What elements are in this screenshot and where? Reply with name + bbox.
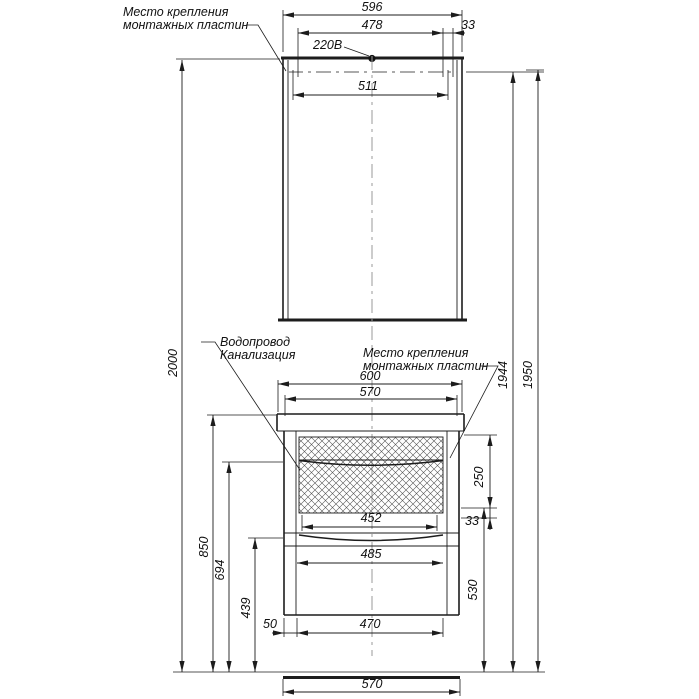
mirror-mounting-label-2: монтажных пластин [123, 18, 249, 32]
power-label: 220В [312, 38, 342, 52]
dim-plate-span: 478 [362, 18, 383, 32]
basin-hatched-area [299, 437, 443, 513]
vanity-top-dimensions: 600 570 [278, 369, 462, 416]
left-dimensions: 2000 850 694 439 [166, 59, 283, 672]
vanity-mounting-label-2: монтажных пластин [363, 359, 489, 373]
dim-drawer-width: 485 [361, 547, 382, 561]
dim-mirror-width: 596 [362, 0, 383, 14]
drawer2-handle-curve [299, 535, 443, 541]
dim-plate-width-top: 33 [461, 18, 475, 32]
bottom-dimensions: 50 470 570 [263, 617, 460, 696]
mirror-mounting-label-1: Место крепления [123, 5, 229, 19]
plumbing-label-2: Канализация [220, 348, 296, 362]
mirror-mounting-callout: Место крепления монтажных пластин [123, 5, 286, 71]
dim-handle1-height: 694 [213, 560, 227, 581]
plumbing-label-1: Водопровод [220, 335, 290, 349]
mirror-mounting-leader [246, 25, 286, 71]
bathroom-furniture-drawing: 596 478 33 511 220В Место крепления монт… [0, 0, 699, 699]
dim-plate-centers: 511 [358, 79, 378, 93]
dim-mounting-height-outer: 1950 [521, 361, 535, 389]
top-dimensions: 596 478 33 511 [283, 0, 475, 100]
dim-total-height: 2000 [166, 349, 180, 378]
dim-cabinet-width-top: 570 [360, 385, 381, 399]
dim-counter-height: 850 [197, 537, 211, 558]
dim-cabinet-width-bottom: 570 [362, 677, 383, 691]
dim-rail-gap: 33 [465, 514, 479, 528]
dim-left-offset: 50 [263, 617, 277, 631]
dim-drawer-opening-width: 452 [361, 511, 382, 525]
dim-counter-width: 600 [360, 369, 381, 383]
technical-drawing-page: 596 478 33 511 220В Место крепления монт… [0, 0, 699, 699]
vanity-mounting-label-1: Место крепления [363, 346, 469, 360]
dim-inner-width: 470 [360, 617, 381, 631]
power-callout: 220В [312, 38, 369, 56]
drawer-dimensions: 452 33 485 [297, 511, 479, 563]
dim-mounting-height-inner: 1944 [496, 361, 510, 389]
dim-handle2-height: 439 [239, 598, 253, 619]
dim-drawer-front-height: 250 [472, 467, 486, 489]
power-leader-line [344, 47, 369, 56]
dim-rail-height: 530 [466, 580, 480, 601]
